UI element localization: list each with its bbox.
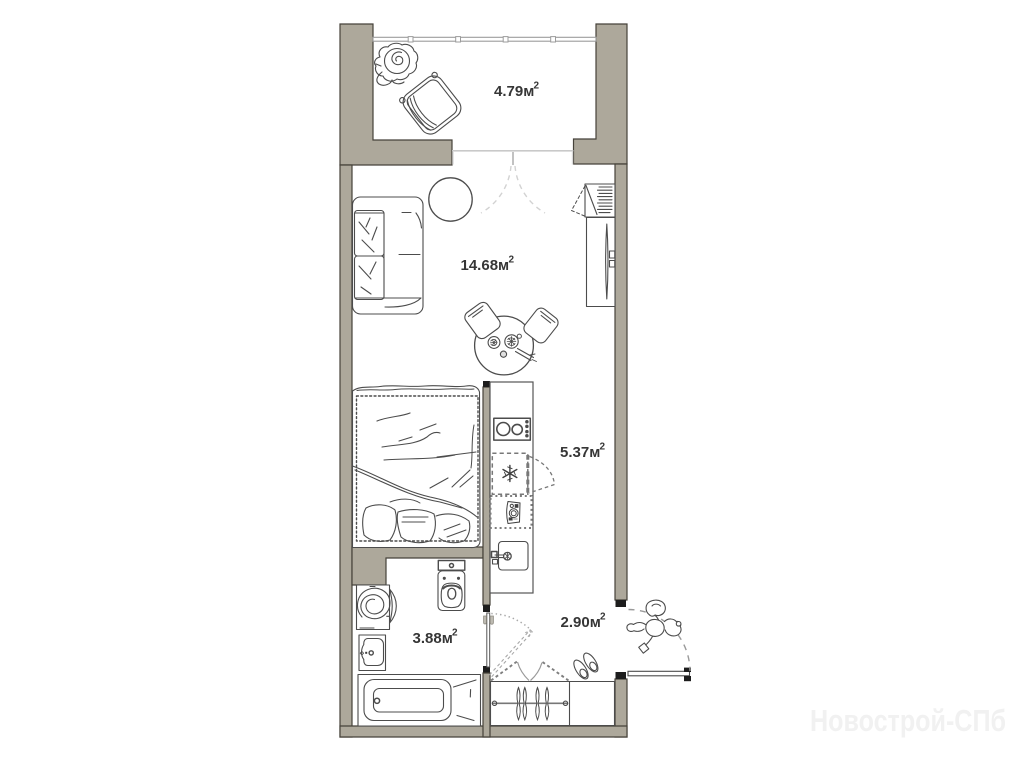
svg-text:Новострой-СПб: Новострой-СПб xyxy=(810,703,1006,738)
svg-text:5.37м: 5.37м xyxy=(560,444,600,461)
svg-text:2: 2 xyxy=(600,442,606,453)
svg-text:4.79м: 4.79м xyxy=(494,83,534,100)
svg-text:2: 2 xyxy=(534,81,540,92)
svg-text:2.90м: 2.90м xyxy=(561,614,601,631)
svg-text:3.88м: 3.88м xyxy=(413,630,453,647)
svg-text:2: 2 xyxy=(509,255,515,266)
svg-text:14.68м: 14.68м xyxy=(461,257,510,274)
svg-text:2: 2 xyxy=(452,628,458,639)
svg-text:2: 2 xyxy=(600,612,606,623)
